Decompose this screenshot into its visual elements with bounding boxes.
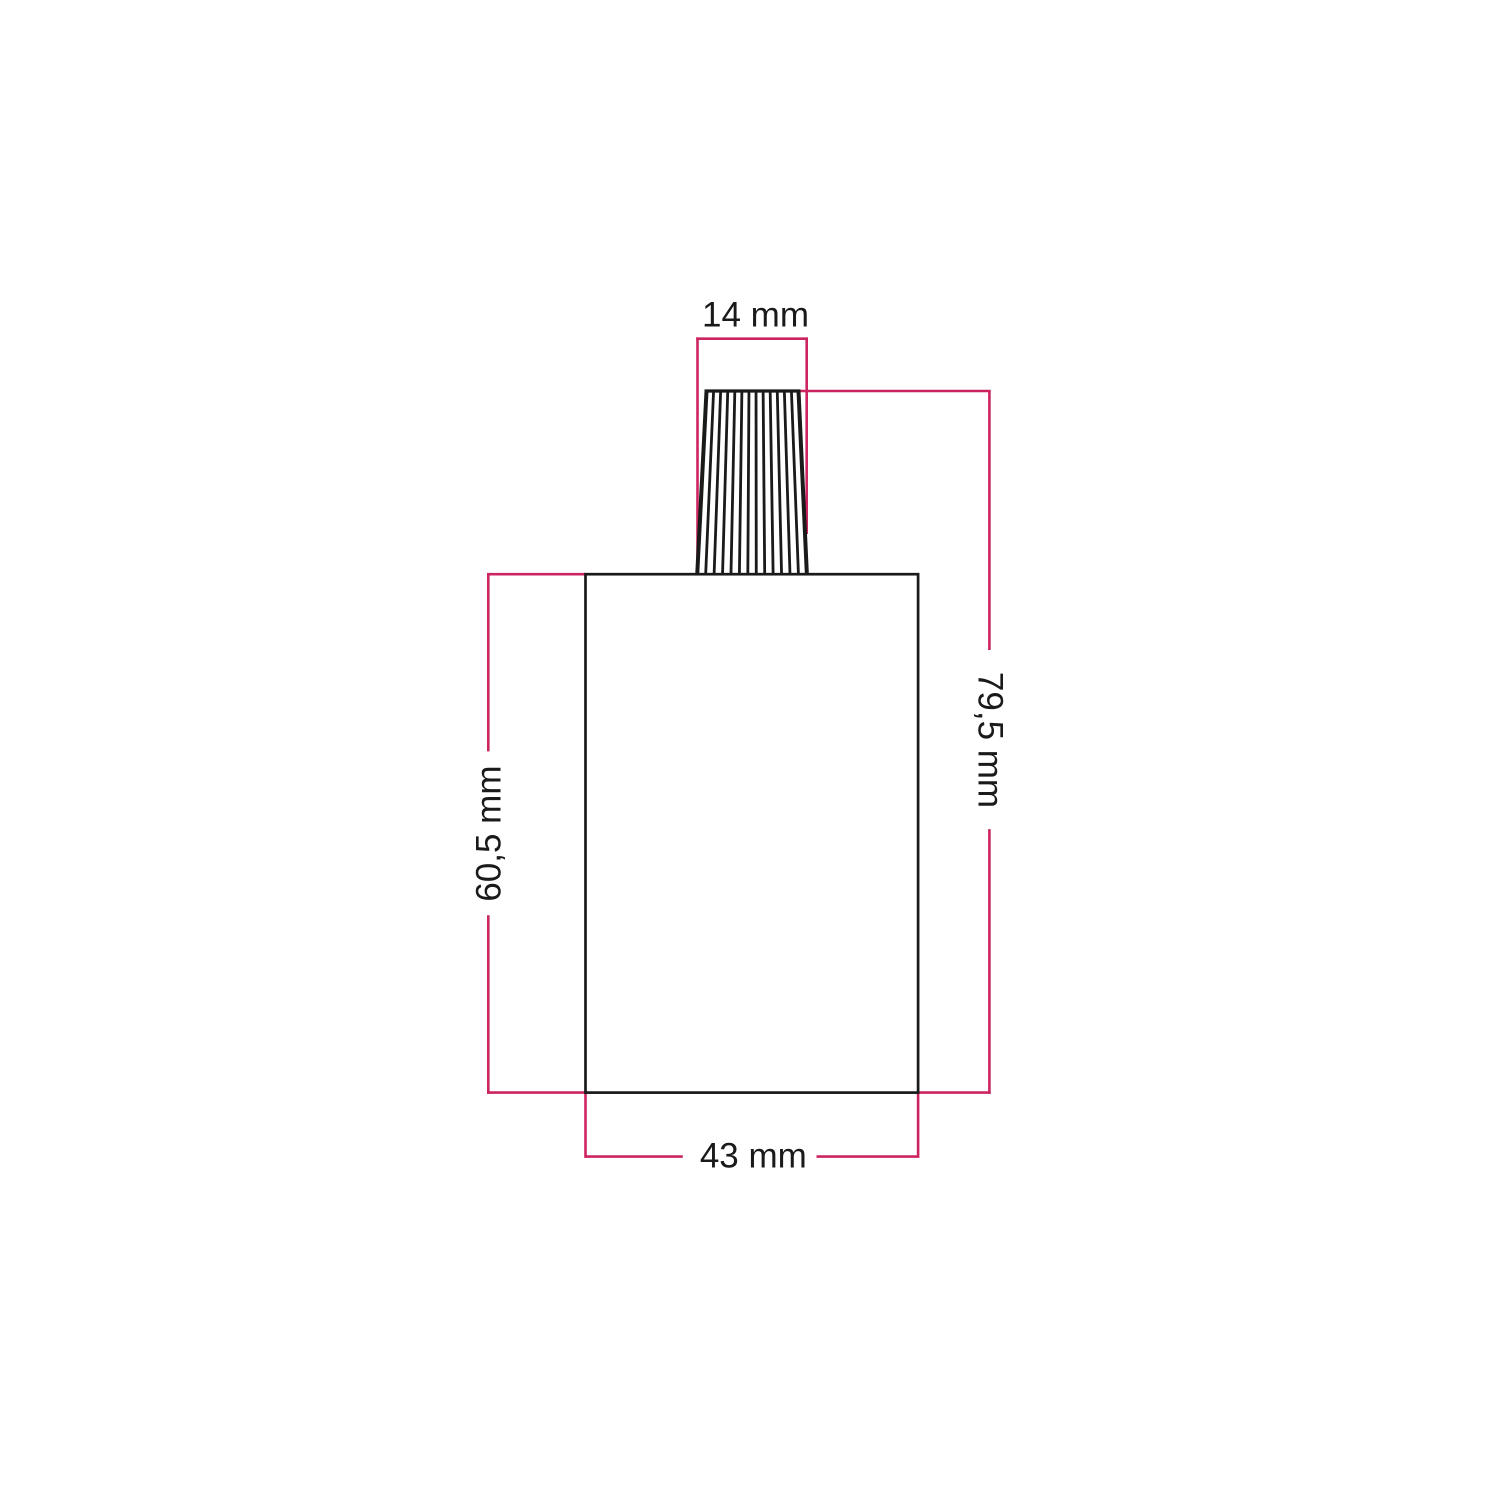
svg-text:43 mm: 43 mm [700,1137,807,1176]
svg-text:14 mm: 14 mm [702,296,809,335]
svg-text:60,5 mm: 60,5 mm [470,766,509,902]
svg-text:79,5 mm: 79,5 mm [971,672,1010,808]
